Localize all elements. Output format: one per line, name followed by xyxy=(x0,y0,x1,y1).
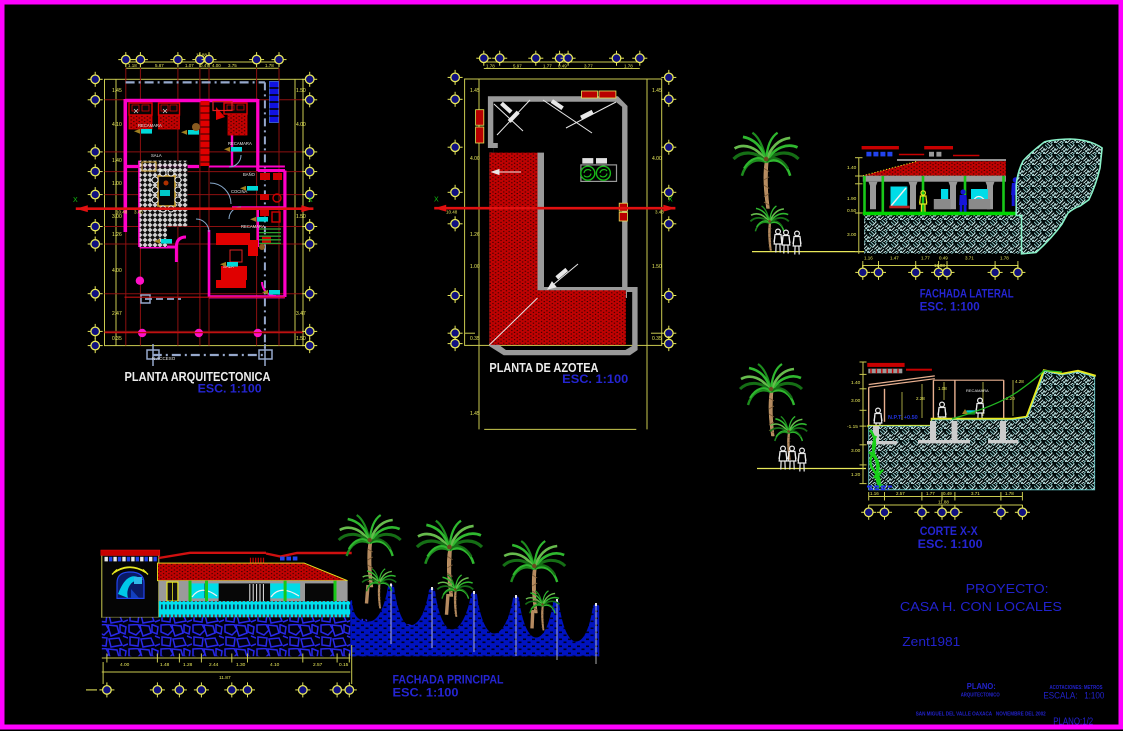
svg-text:1.30: 1.30 xyxy=(236,662,246,668)
svg-text:X: X xyxy=(308,197,313,204)
svg-text:1.77: 1.77 xyxy=(926,491,935,496)
svg-text:1.50: 1.50 xyxy=(296,336,306,342)
svg-text:0.49: 0.49 xyxy=(939,256,948,261)
svg-text:1.77: 1.77 xyxy=(921,256,930,261)
svg-text:1.16: 1.16 xyxy=(864,256,873,261)
svg-text:1.26: 1.26 xyxy=(112,232,122,238)
svg-text:ESC. 1:100: ESC. 1:100 xyxy=(918,539,983,551)
svg-text:3.00: 3.00 xyxy=(847,232,857,238)
svg-text:2.28: 2.28 xyxy=(916,396,925,401)
svg-text:3.48: 3.48 xyxy=(134,210,143,215)
svg-text:3.47: 3.47 xyxy=(296,311,306,317)
svg-text:4.28: 4.28 xyxy=(1015,379,1024,384)
svg-text:PLANTA DE AZOTEA: PLANTA DE AZOTEA xyxy=(489,360,599,375)
svg-text:-1.15: -1.15 xyxy=(847,424,858,430)
svg-text:3.00: 3.00 xyxy=(112,214,122,220)
svg-text:11.87: 11.87 xyxy=(219,675,231,681)
svg-text:X: X xyxy=(668,197,673,204)
svg-text:1.08: 1.08 xyxy=(938,386,947,391)
svg-text:1.26: 1.26 xyxy=(470,232,480,238)
svg-text:1.50: 1.50 xyxy=(296,88,306,94)
svg-text:0.35: 0.35 xyxy=(652,336,662,342)
svg-text:4.00: 4.00 xyxy=(112,268,122,274)
svg-text:1.28: 1.28 xyxy=(183,662,193,668)
svg-text:0.15: 0.15 xyxy=(339,662,349,668)
svg-text:0.47: 0.47 xyxy=(200,63,209,68)
svg-text:1.45: 1.45 xyxy=(470,411,480,417)
svg-text:X: X xyxy=(434,197,439,204)
svg-text:3.71: 3.71 xyxy=(965,256,974,261)
svg-text:RECAMARA: RECAMARA xyxy=(138,123,162,128)
svg-text:3.77: 3.77 xyxy=(584,63,593,68)
svg-text:RECAMARA: RECAMARA xyxy=(241,224,265,229)
svg-text:ESCALA: 1:100: ESCALA: 1:100 xyxy=(1043,691,1104,701)
svg-text:2.57: 2.57 xyxy=(313,662,323,668)
svg-text:FACHADA LATERAL: FACHADA LATERAL xyxy=(920,289,1014,301)
svg-text:11.88: 11.88 xyxy=(938,500,949,505)
svg-text:4.00: 4.00 xyxy=(652,156,662,162)
svg-text:3.71: 3.71 xyxy=(971,491,980,496)
svg-text:0.50: 0.50 xyxy=(847,208,857,214)
svg-text:ESC. 1:100: ESC. 1:100 xyxy=(198,384,262,396)
svg-text:1.20: 1.20 xyxy=(851,472,861,478)
svg-text:COMEDOR: COMEDOR xyxy=(157,168,179,173)
svg-text:ESC. 1:100: ESC. 1:100 xyxy=(393,688,459,700)
svg-text:1.78: 1.78 xyxy=(624,63,633,68)
svg-text:5.97: 5.97 xyxy=(513,63,522,68)
svg-text:N ACCESO: N ACCESO xyxy=(152,356,176,361)
svg-text:0.49: 0.49 xyxy=(943,491,952,496)
svg-text:1.40: 1.40 xyxy=(851,380,861,386)
svg-text:4.00: 4.00 xyxy=(470,156,480,162)
svg-text:1.48: 1.48 xyxy=(160,662,170,668)
svg-text:3.00: 3.00 xyxy=(851,398,861,404)
svg-text:4.00: 4.00 xyxy=(120,662,130,668)
svg-text:1.78: 1.78 xyxy=(1000,256,1009,261)
svg-text:SALA: SALA xyxy=(151,153,162,158)
svg-text:CASA H. CON LOCALES: CASA H. CON LOCALES xyxy=(900,599,1062,614)
svg-text:1.78: 1.78 xyxy=(265,63,274,68)
svg-text:1.50: 1.50 xyxy=(296,214,306,220)
svg-text:3.75: 3.75 xyxy=(228,63,237,68)
svg-text:ESC. 1:100: ESC. 1:100 xyxy=(562,374,628,386)
svg-text:1.90: 1.90 xyxy=(847,196,857,202)
svg-text:ARQUITECTONICO: ARQUITECTONICO xyxy=(961,692,1001,698)
svg-text:PROYECTO:: PROYECTO: xyxy=(966,581,1049,596)
svg-text:1.45: 1.45 xyxy=(652,88,662,94)
svg-text:3.00: 3.00 xyxy=(851,448,861,454)
svg-text:N.P.T. +0.50: N.P.T. +0.50 xyxy=(888,415,918,421)
svg-text:2.57: 2.57 xyxy=(896,491,905,496)
svg-text:4.00: 4.00 xyxy=(212,63,221,68)
svg-text:10.48: 10.48 xyxy=(446,210,458,215)
svg-text:PLANO:1/2: PLANO:1/2 xyxy=(1053,715,1093,727)
svg-text:1.78: 1.78 xyxy=(1005,491,1014,496)
svg-text:0.35: 0.35 xyxy=(112,336,122,342)
svg-text:PLANTA ARQUITECTONICA: PLANTA ARQUITECTONICA xyxy=(125,369,272,384)
svg-text:SAN MIGUEL DEL VALLE OAXACA: SAN MIGUEL DEL VALLE OAXACA NOVIEMBRE DE… xyxy=(916,712,1046,718)
svg-text:3.48: 3.48 xyxy=(655,210,664,215)
svg-text:1.40: 1.40 xyxy=(847,165,857,171)
svg-text:PLANO:: PLANO: xyxy=(967,682,996,691)
svg-text:1.45: 1.45 xyxy=(470,88,480,94)
svg-text:0.35: 0.35 xyxy=(470,336,480,342)
svg-text:X: X xyxy=(73,197,78,204)
svg-text:1.45: 1.45 xyxy=(112,88,122,94)
svg-text:1.07: 1.07 xyxy=(185,63,194,68)
svg-text:1.47: 1.47 xyxy=(890,256,899,261)
svg-text:1.16: 1.16 xyxy=(870,491,879,496)
svg-text:RECAMARA: RECAMARA xyxy=(966,388,989,393)
svg-text:BAÑO: BAÑO xyxy=(243,172,256,177)
svg-text:Zent1981: Zent1981 xyxy=(902,634,960,649)
svg-text:5.87: 5.87 xyxy=(155,63,164,68)
svg-text:1.50: 1.50 xyxy=(652,264,662,270)
svg-text:10.48: 10.48 xyxy=(116,210,128,215)
svg-text:1.40: 1.40 xyxy=(112,158,122,164)
svg-text:1.00: 1.00 xyxy=(470,264,480,270)
svg-text:1.78: 1.78 xyxy=(486,63,495,68)
svg-text:1.00: 1.00 xyxy=(112,181,122,187)
svg-text:4.10: 4.10 xyxy=(112,122,122,128)
svg-text:RECAMARA: RECAMARA xyxy=(228,141,252,146)
svg-text:11.88: 11.88 xyxy=(934,263,945,268)
svg-text:11.88: 11.88 xyxy=(196,53,207,58)
svg-text:2.44: 2.44 xyxy=(209,662,219,668)
svg-text:4.10: 4.10 xyxy=(270,662,280,668)
svg-text:2.47: 2.47 xyxy=(112,311,122,317)
svg-text:FACHADA PRINCIPAL: FACHADA PRINCIPAL xyxy=(393,675,504,687)
svg-text:ESC. 1:100: ESC. 1:100 xyxy=(920,302,980,314)
svg-text:4.00: 4.00 xyxy=(296,122,306,128)
svg-text:1.18: 1.18 xyxy=(128,63,137,68)
svg-text:CORTE X-X: CORTE X-X xyxy=(920,526,978,538)
svg-text:1.77: 1.77 xyxy=(543,63,552,68)
